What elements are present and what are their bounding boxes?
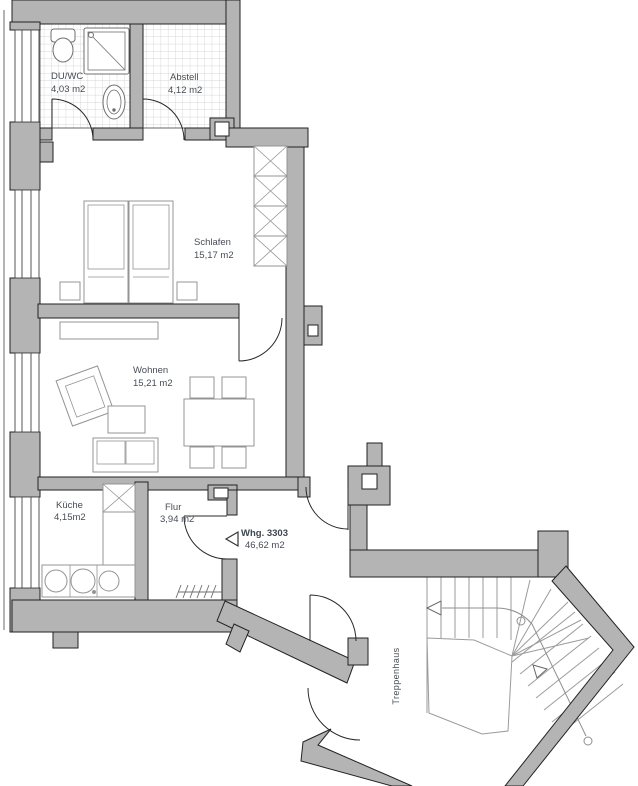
wall-bath-bottom-3 bbox=[185, 128, 210, 140]
window-kueche bbox=[15, 497, 39, 588]
dining-table bbox=[184, 399, 254, 446]
kitchen-sink bbox=[45, 570, 67, 592]
label-duwc: DU/WC bbox=[51, 71, 83, 82]
door-neighbor bbox=[308, 688, 360, 740]
shower-drain-icon bbox=[89, 33, 94, 38]
label-flur: Flur bbox=[165, 502, 181, 513]
sideboard bbox=[60, 322, 158, 339]
window-schlafen bbox=[15, 190, 39, 278]
wall-left-1 bbox=[10, 22, 40, 30]
door-hall-lower bbox=[310, 595, 356, 641]
wall-schlafen-wohnen bbox=[38, 304, 239, 318]
wall-left-2 bbox=[10, 122, 40, 190]
kitchen-hob bbox=[99, 571, 119, 591]
nightstand-right bbox=[177, 282, 197, 300]
chair-top-left bbox=[190, 377, 214, 398]
wall-stair-top-band bbox=[350, 550, 545, 577]
wall-column-stub bbox=[367, 443, 382, 468]
wall-bottom-band bbox=[12, 600, 237, 632]
dining-set bbox=[184, 377, 254, 468]
label-duwc-area: 4,03 m2 bbox=[51, 84, 85, 95]
kitchen-basin bbox=[71, 569, 95, 593]
label-abstell: Abstell bbox=[170, 72, 199, 83]
chair-top-right bbox=[222, 377, 246, 398]
window-wohnen bbox=[15, 353, 39, 432]
sofa bbox=[93, 438, 158, 472]
label-schlafen-area: 15,17 m2 bbox=[194, 250, 234, 261]
label-kueche-area: 4,15m2 bbox=[54, 512, 86, 523]
wall-kueche-flur-divider bbox=[135, 482, 148, 612]
washbasin-drain-icon bbox=[113, 109, 115, 111]
label-treppenhaus: Treppenhaus bbox=[391, 647, 401, 704]
chair-bottom-right bbox=[222, 447, 246, 468]
entrance-arrow-icon bbox=[226, 532, 238, 546]
wall-door-jamb-block bbox=[348, 638, 368, 665]
armchair bbox=[56, 366, 114, 426]
wall-stair-right-diagonal bbox=[505, 566, 634, 786]
duct-opening-flur bbox=[214, 488, 228, 498]
wall-jamb-hall bbox=[298, 477, 310, 497]
label-apartment: Whg. 3303 bbox=[241, 528, 288, 539]
stair-direction-arrow-icon bbox=[427, 601, 441, 615]
door-schlafen-wohnen bbox=[239, 318, 282, 361]
kitchen-faucet-icon bbox=[93, 591, 96, 594]
label-wohnen-area: 15,21 m2 bbox=[133, 378, 173, 389]
floorplan-drawing: DU/WC 4,03 m2 Abstell 4,12 m2 Schlafen 1… bbox=[0, 0, 638, 786]
label-schlafen: Schlafen bbox=[194, 237, 231, 248]
kitchen-counter-right bbox=[103, 512, 135, 565]
wall-left-step bbox=[40, 142, 53, 162]
window-duwc bbox=[15, 30, 39, 122]
wall-top bbox=[12, 0, 238, 24]
label-abstell-area: 4,12 m2 bbox=[168, 85, 202, 96]
bed-right bbox=[129, 201, 173, 303]
wall-schlafen-top-right bbox=[226, 128, 308, 147]
bedroom-furniture bbox=[60, 146, 287, 303]
label-flur-area: 3,94 m2 bbox=[160, 514, 194, 525]
wall-duwc-abstell-divider bbox=[130, 24, 143, 140]
chair-bottom-left bbox=[190, 447, 214, 468]
wall-left-4 bbox=[10, 432, 40, 497]
wall-left-3 bbox=[10, 278, 40, 353]
living-furniture bbox=[56, 322, 254, 472]
bed-left bbox=[84, 201, 128, 303]
wall-bottom-arrow bbox=[301, 729, 412, 786]
stair-landing bbox=[427, 638, 512, 734]
toilet-bowl bbox=[53, 38, 73, 62]
duct-opening-column bbox=[362, 474, 377, 489]
wall-bottom-bump bbox=[53, 632, 78, 648]
nightstand-left bbox=[60, 282, 80, 300]
wardrobe bbox=[254, 146, 287, 266]
coat-rack-icon bbox=[176, 585, 222, 598]
label-kueche: Küche bbox=[56, 500, 83, 511]
wall-wohnen-bottom bbox=[38, 477, 308, 490]
wall-right-main bbox=[286, 147, 304, 477]
label-wohnen: Wohnen bbox=[133, 365, 168, 376]
duct-opening-abstell bbox=[215, 122, 229, 136]
floorplan-page: DU/WC 4,03 m2 Abstell 4,12 m2 Schlafen 1… bbox=[0, 0, 638, 786]
duct-opening-wohnen bbox=[308, 325, 318, 336]
door-hall-upper bbox=[306, 487, 348, 530]
wall-bath-bottom-2 bbox=[93, 128, 143, 140]
wall-bath-bottom-1 bbox=[40, 128, 52, 140]
label-apartment-area: 46,62 m2 bbox=[245, 540, 285, 551]
coffee-table bbox=[108, 406, 145, 433]
